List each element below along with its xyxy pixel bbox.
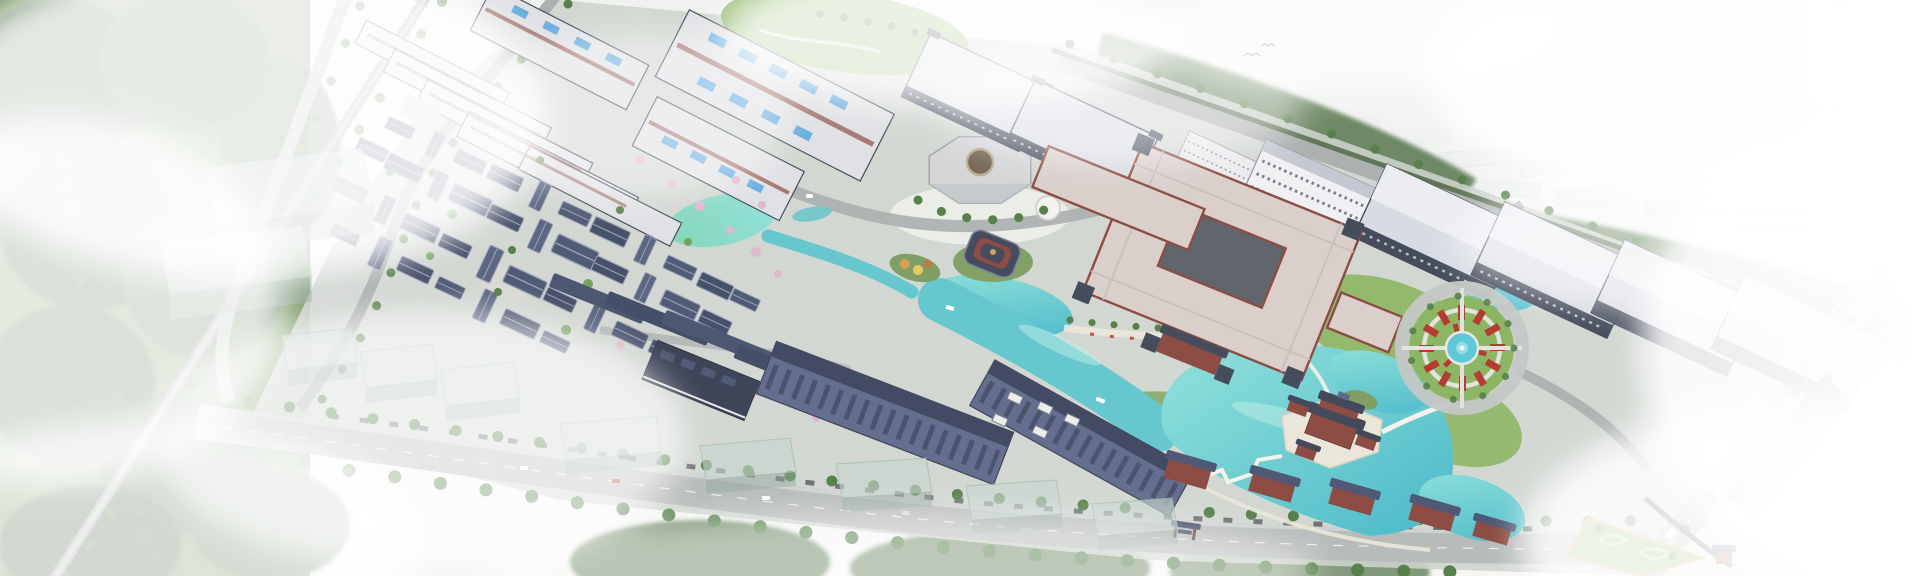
aerial-rendering-stage xyxy=(0,0,1920,576)
site-aerial-rendering xyxy=(0,0,1920,576)
global-haze xyxy=(0,0,1920,576)
